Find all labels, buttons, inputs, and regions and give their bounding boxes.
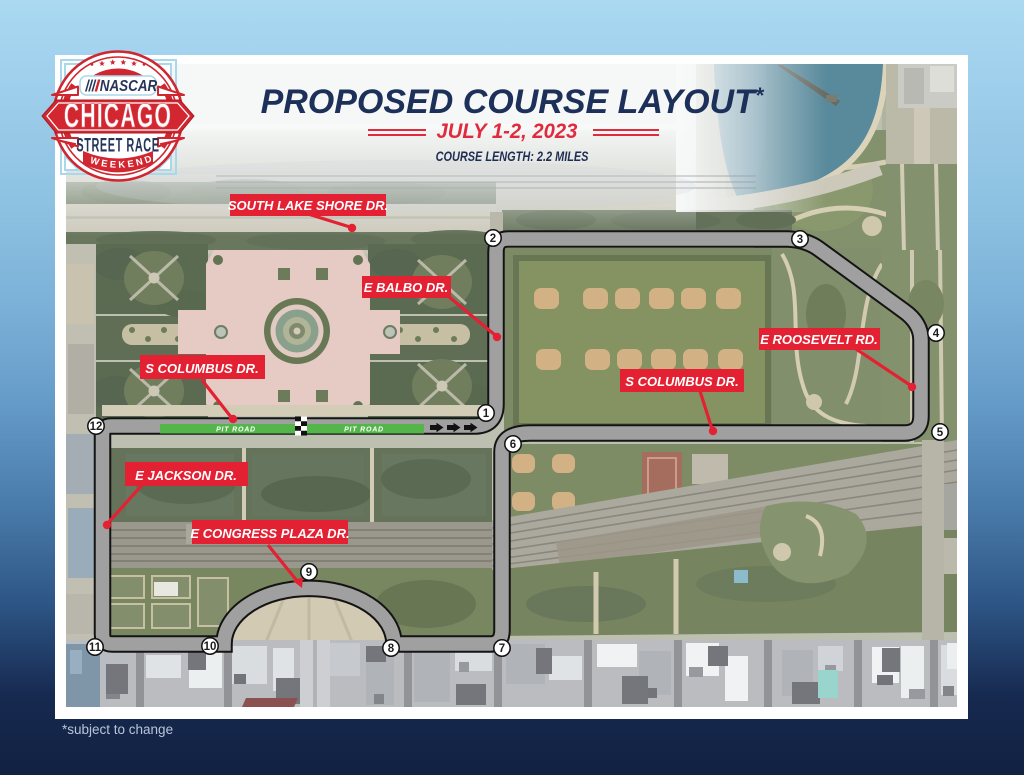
svg-text:E BALBO DR.: E BALBO DR. — [364, 280, 449, 295]
svg-text:PIT ROAD: PIT ROAD — [344, 427, 384, 434]
svg-text:9: 9 — [306, 567, 312, 579]
svg-text:1: 1 — [483, 408, 490, 420]
svg-text:2: 2 — [490, 233, 496, 245]
svg-text:E ROOSEVELT RD.: E ROOSEVELT RD. — [760, 332, 878, 347]
svg-text:4: 4 — [933, 328, 940, 340]
svg-text:SOUTH LAKE SHORE DR.: SOUTH LAKE SHORE DR. — [228, 198, 388, 213]
svg-text:CHICAGO: CHICAGO — [64, 96, 172, 134]
svg-text:E CONGRESS PLAZA DR.: E CONGRESS PLAZA DR. — [190, 526, 349, 541]
svg-text:S COLUMBUS DR.: S COLUMBUS DR. — [145, 361, 258, 376]
svg-text:NASCAR: NASCAR — [100, 78, 158, 95]
svg-text:12: 12 — [90, 421, 103, 433]
svg-text:E JACKSON DR.: E JACKSON DR. — [135, 468, 237, 483]
svg-text:3: 3 — [797, 234, 803, 246]
svg-text:8: 8 — [388, 643, 395, 655]
svg-text:S COLUMBUS DR.: S COLUMBUS DR. — [625, 374, 738, 389]
svg-text:5: 5 — [937, 427, 944, 439]
svg-text:6: 6 — [510, 439, 516, 451]
svg-text:10: 10 — [204, 641, 217, 653]
svg-text:11: 11 — [89, 642, 102, 654]
svg-text:STREET RACE: STREET RACE — [76, 135, 159, 156]
svg-text:PIT ROAD: PIT ROAD — [216, 427, 256, 434]
svg-text:7: 7 — [499, 643, 505, 655]
